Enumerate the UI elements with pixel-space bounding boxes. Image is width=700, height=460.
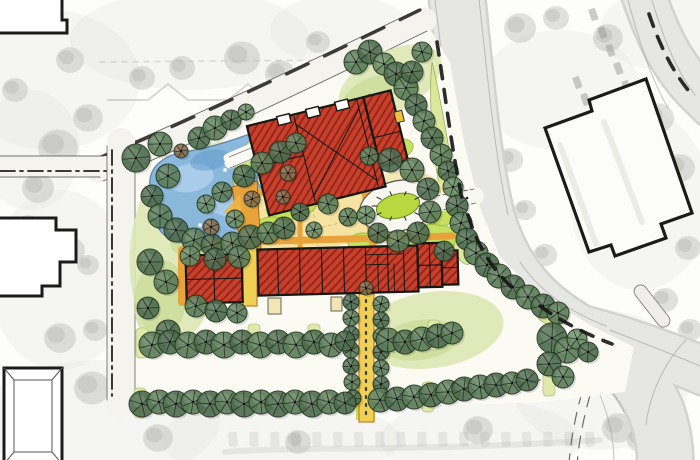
site-plan-image — [0, 0, 700, 460]
site-plan-canvas — [0, 0, 700, 460]
context-building-bottom-left — [4, 368, 62, 460]
context-building-top-left — [0, 0, 67, 33]
